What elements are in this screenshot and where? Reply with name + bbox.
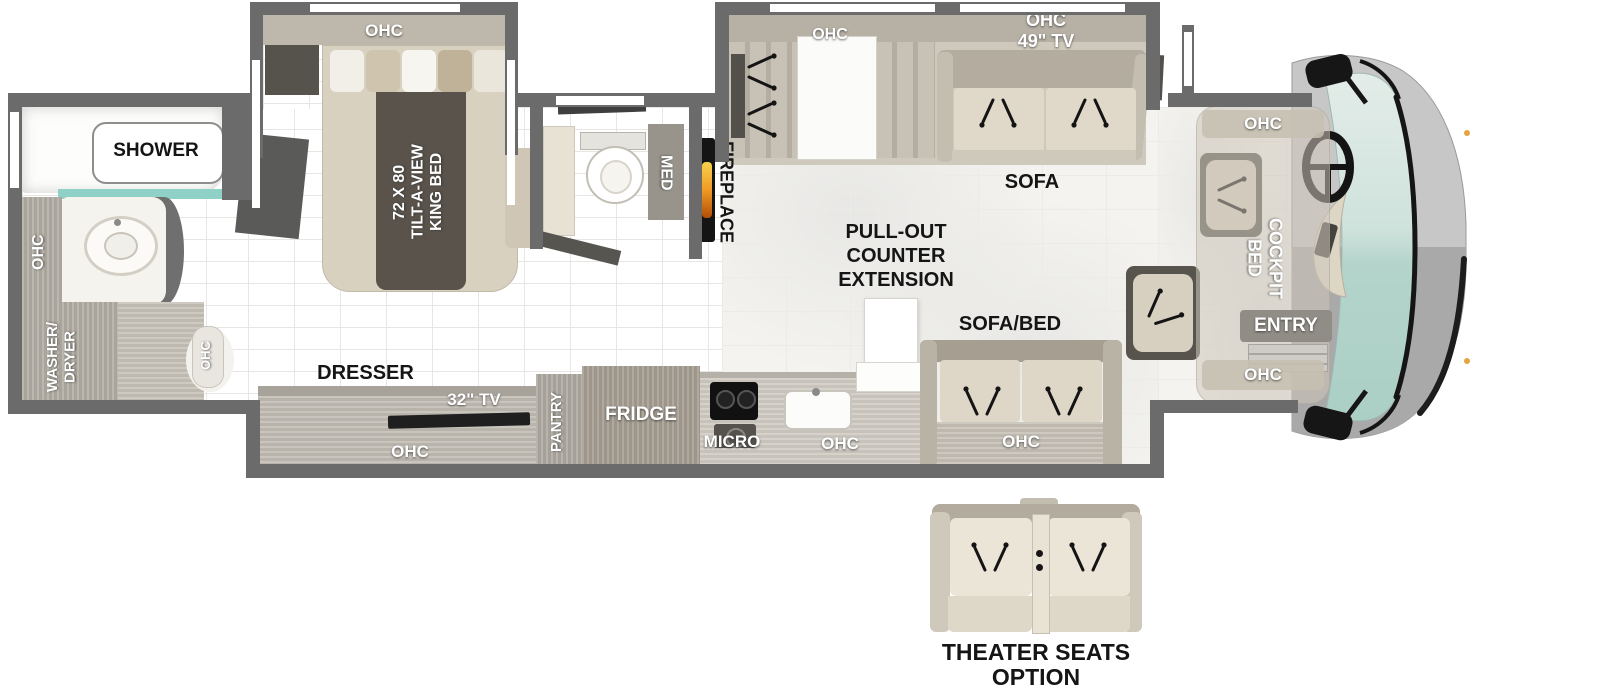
kitchen-sink: [784, 390, 852, 430]
bedroom-ohc-label: OHC: [263, 19, 505, 43]
cupholder-icon: [1036, 550, 1043, 557]
theater-console: [1032, 514, 1050, 634]
sofa-back: [937, 50, 1147, 88]
sofa-arm-left: [937, 52, 953, 162]
cockpit-bed-label: COCKPIT BED: [1244, 200, 1285, 316]
window-front-side: [1184, 32, 1192, 86]
wardrobe-ohc-label: OHC: [199, 332, 214, 380]
kitchen-faucet-icon: [812, 388, 820, 396]
theater-cushion-front: [948, 596, 1032, 632]
kitchen-ohc-label: OHC: [800, 433, 880, 455]
window-living-slide-1: [770, 4, 935, 12]
med-label: MED: [656, 142, 674, 204]
rear-ohc-label: OHC: [30, 216, 48, 288]
sofa-bed-arm-right: [1103, 340, 1122, 468]
shower-label: SHOWER: [92, 122, 220, 180]
cabinet-door-icon: [745, 50, 779, 94]
burner-icon: [737, 390, 756, 409]
rv-floorplan: SHOWER OHC WASHER/ DRYER OHC OHC 72 X 80…: [0, 0, 1600, 691]
window-rear: [10, 112, 19, 188]
micro-label: MICRO: [688, 430, 776, 454]
hutch-ohc-label: OHC: [790, 24, 870, 46]
wall-bottom-main: [246, 464, 1164, 478]
king-bed-label: 72 X 80 TILT-A-VIEW KING BED: [391, 100, 446, 284]
seat-direction-icon: [960, 384, 1004, 418]
pillow: [402, 50, 436, 92]
cockpit-ohc-bottom-label: OHC: [1202, 363, 1324, 387]
burner-icon: [716, 390, 735, 409]
hutch-door: [797, 36, 877, 160]
seat-direction-icon: [976, 96, 1020, 130]
step-line: [1249, 345, 1327, 355]
living-slide-wall-left: [715, 2, 729, 162]
fireplace-flame-icon: [702, 162, 712, 218]
pantry-label: PANTRY: [548, 380, 565, 464]
tv49-ohc-label: OHC 49" TV: [996, 10, 1096, 51]
window-bathroom: [556, 96, 644, 105]
theater-arm-left: [930, 512, 950, 632]
wall-bottom-rear: [8, 400, 260, 414]
theater-seats-label: THEATER SEATS OPTION: [936, 640, 1136, 690]
cabinet-door-icon: [745, 97, 779, 141]
seat-direction-icon: [1042, 384, 1086, 418]
washer-dryer-label: WASHER/ DRYER: [44, 304, 79, 410]
theater-cushion-front: [1046, 596, 1130, 632]
nightstand-left: [265, 45, 319, 95]
window-bed-slide-top: [310, 4, 460, 12]
toilet-bowl: [600, 160, 632, 194]
window-bed-slide-left: [252, 60, 260, 208]
pillow: [474, 50, 508, 92]
wall-bottom-entry: [1150, 400, 1298, 413]
fireplace-wall: [689, 107, 702, 259]
counter-extension-label: PULL-OUT COUNTER EXTENSION: [818, 220, 974, 292]
seat-direction-icon: [1066, 540, 1110, 574]
sofa-bed-ohc-label: OHC: [985, 431, 1057, 453]
pillow: [438, 50, 472, 92]
bath-sink-basin: [104, 232, 138, 260]
pillow: [330, 50, 364, 92]
sofa-bed-arm-left: [920, 340, 937, 468]
window-bed-slide-right: [507, 60, 515, 205]
linen-cabinet: [543, 126, 575, 236]
pillow: [366, 50, 400, 92]
tv32-label: 32" TV: [430, 389, 518, 411]
seat-direction-icon: [1068, 96, 1112, 130]
fridge-label: FRIDGE: [582, 402, 700, 428]
counter-extension-base: [856, 362, 924, 392]
sofa-bed-label: SOFA/BED: [940, 311, 1080, 337]
sofa-front: [952, 150, 1136, 164]
window-living-slide-2: [960, 4, 1125, 12]
faucet-icon: [114, 219, 121, 226]
sofa-bed-back: [920, 340, 1122, 362]
living-slide-wall-right: [1146, 2, 1160, 110]
bathroom-wall: [530, 107, 543, 249]
counter-extension: [864, 298, 918, 366]
dresser-label: DRESSER: [298, 360, 433, 386]
dresser-ohc-label: OHC: [375, 440, 445, 464]
sofa-label: SOFA: [990, 169, 1074, 195]
cockpit-ohc-top-label: OHC: [1202, 112, 1324, 136]
seat-direction-icon: [968, 540, 1012, 574]
entry-label: ENTRY: [1240, 312, 1332, 340]
cupholder-icon: [1036, 564, 1043, 571]
